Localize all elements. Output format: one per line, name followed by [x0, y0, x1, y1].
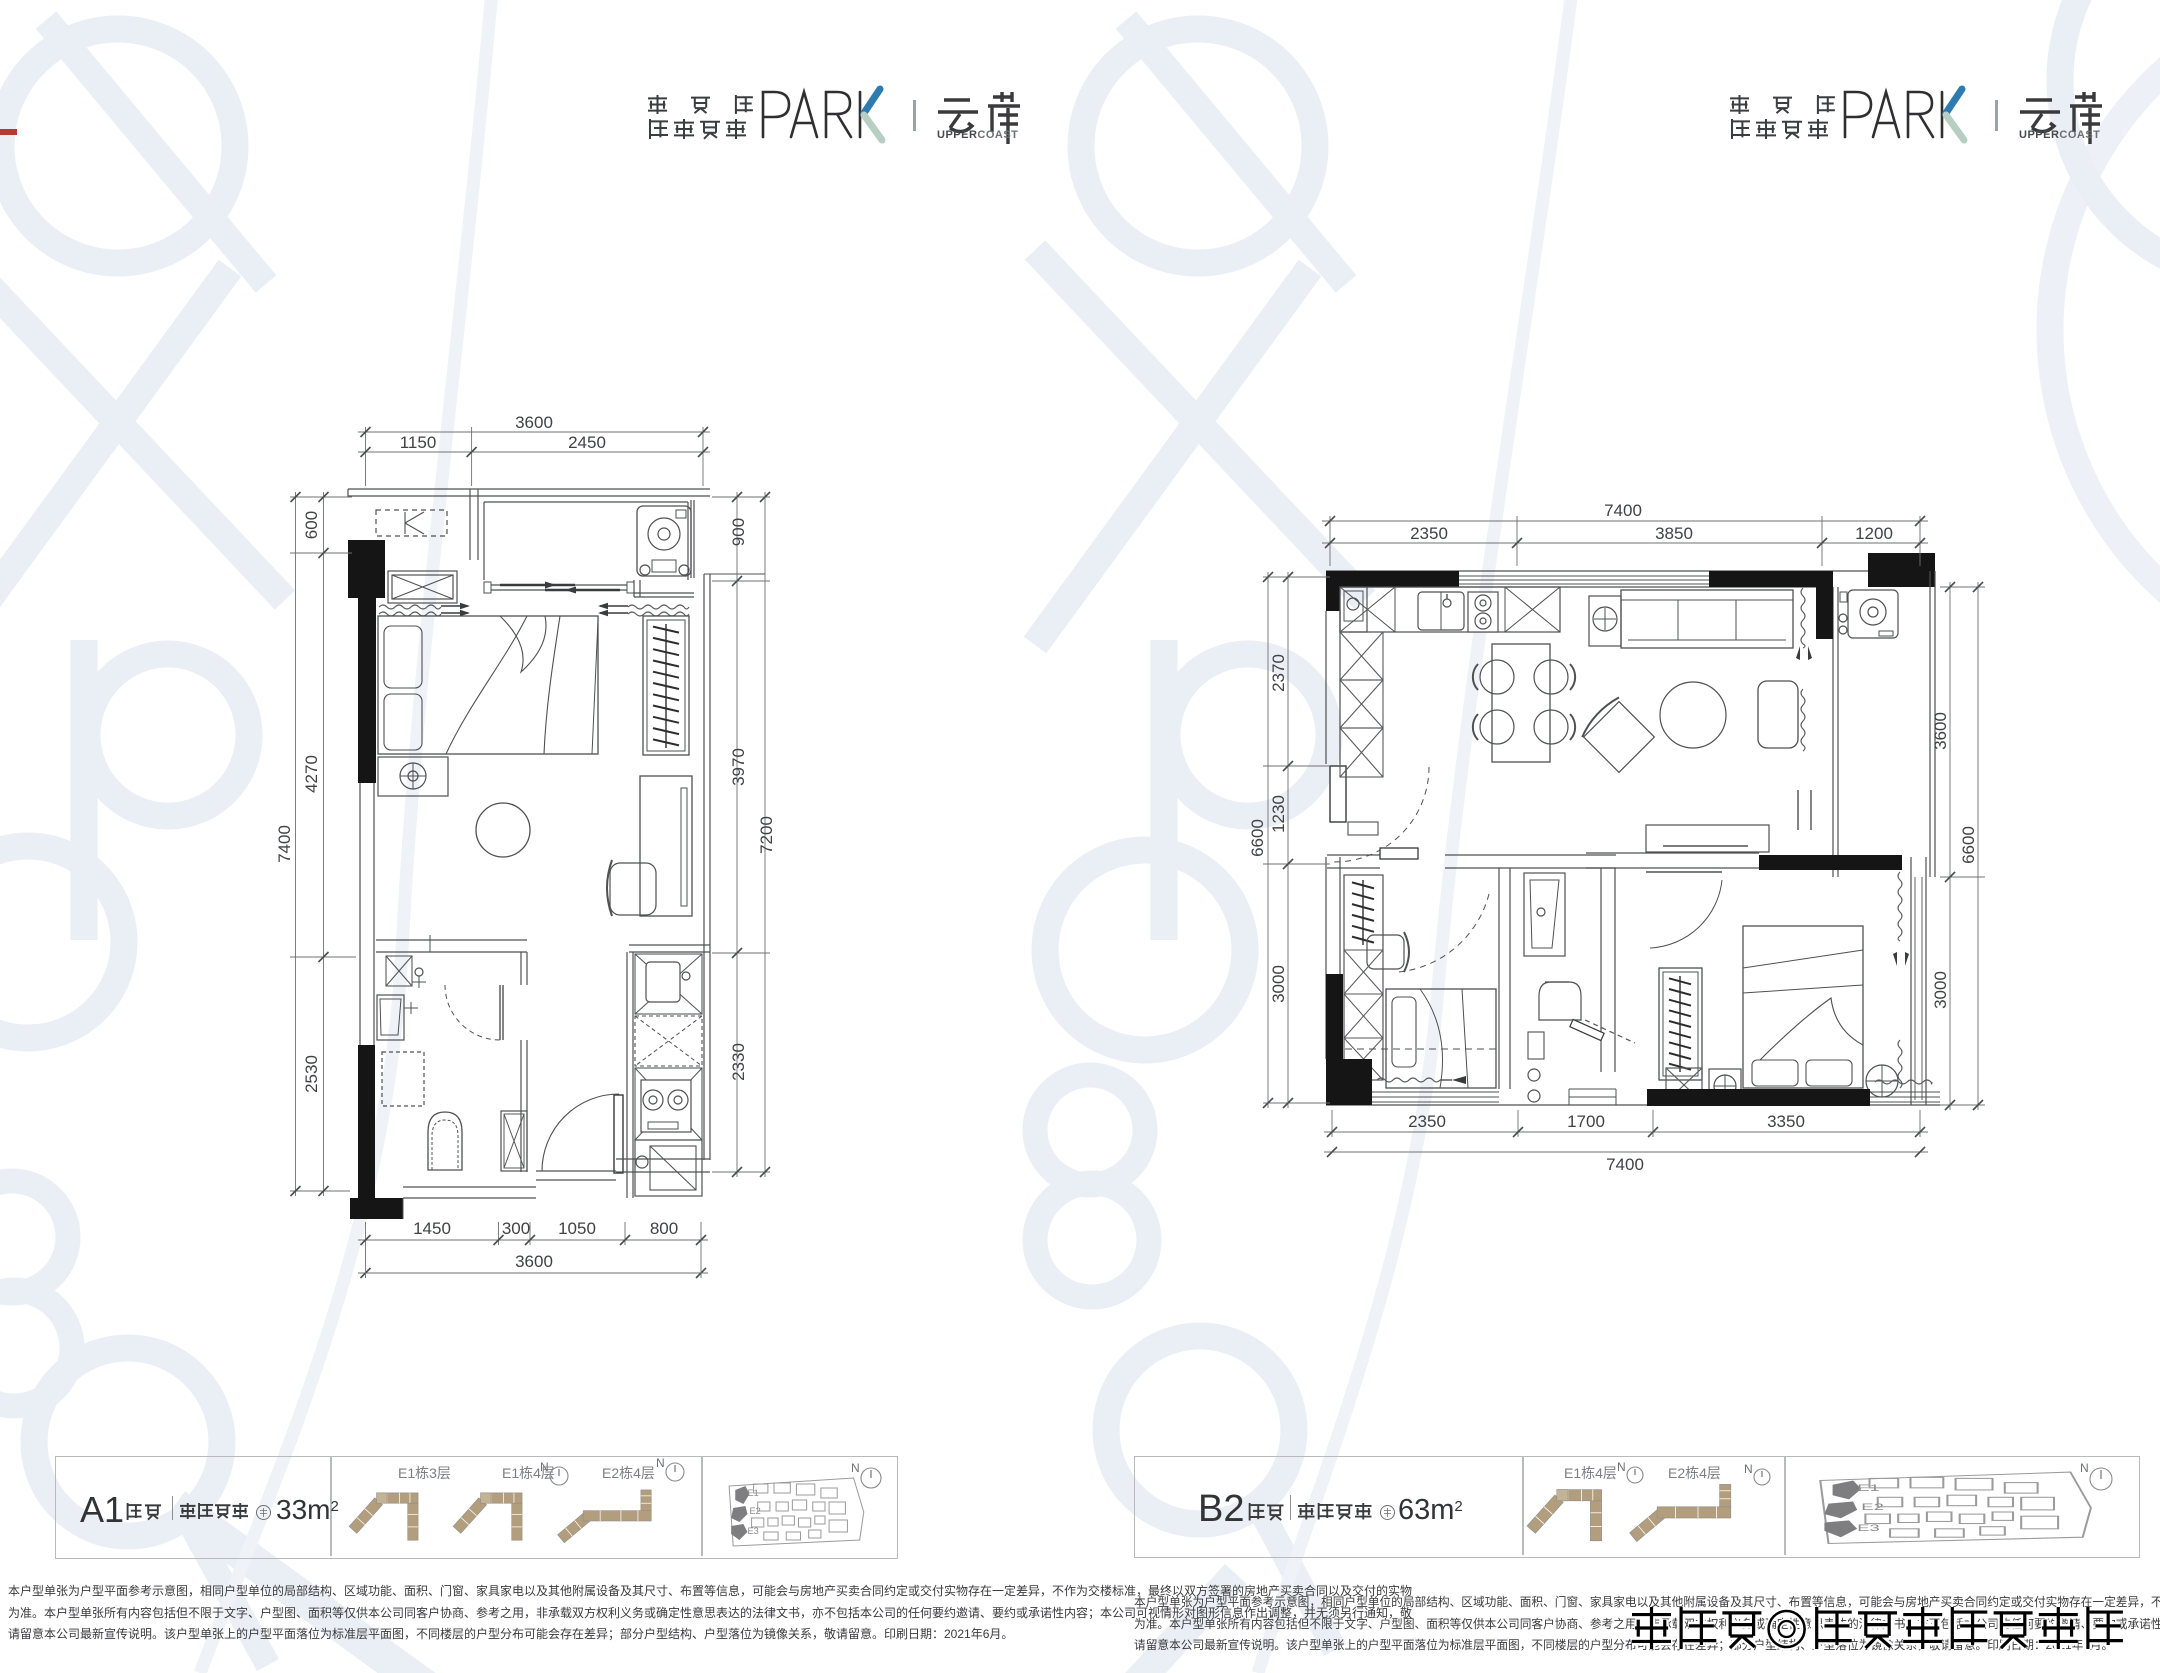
svg-text:N: N: [1617, 1460, 1626, 1474]
svg-text:N: N: [656, 1456, 665, 1470]
svg-text:7200: 7200: [757, 816, 776, 854]
svg-text:1230: 1230: [1269, 795, 1288, 833]
svg-text:1150: 1150: [400, 433, 437, 452]
svg-text:1700: 1700: [1567, 1112, 1605, 1131]
svg-text:N: N: [2080, 1461, 2089, 1475]
svg-text:800: 800: [650, 1219, 678, 1238]
svg-text:E2栋4层: E2栋4层: [602, 1465, 655, 1481]
svg-text:1050: 1050: [558, 1219, 596, 1238]
svg-text:300: 300: [502, 1219, 530, 1238]
svg-text:7400: 7400: [275, 825, 294, 863]
svg-text:3600: 3600: [515, 1252, 553, 1271]
svg-text:900: 900: [729, 518, 748, 546]
svg-text:600: 600: [302, 511, 321, 539]
svg-text:E1: E1: [747, 1488, 758, 1498]
svg-text:E2栋4层: E2栋4层: [1668, 1465, 1721, 1481]
svg-text:6600: 6600: [1248, 819, 1267, 857]
svg-text:3600: 3600: [1931, 712, 1950, 750]
svg-text:E2: E2: [1861, 1502, 1884, 1512]
svg-text:4270: 4270: [302, 755, 321, 793]
svg-text:3600: 3600: [515, 413, 553, 432]
svg-text:E3: E3: [747, 1526, 758, 1536]
svg-text:3000: 3000: [1269, 965, 1288, 1003]
svg-text:2330: 2330: [729, 1043, 748, 1081]
svg-text:E1: E1: [1857, 1483, 1880, 1493]
svg-text:E3: E3: [1857, 1523, 1880, 1533]
svg-text:1450: 1450: [413, 1219, 451, 1238]
svg-text:N: N: [1744, 1462, 1753, 1476]
svg-text:N: N: [851, 1461, 860, 1475]
svg-text:7400: 7400: [1604, 501, 1642, 520]
svg-text:N: N: [540, 1460, 549, 1474]
svg-text:3850: 3850: [1655, 524, 1693, 543]
svg-text:3970: 3970: [729, 748, 748, 786]
svg-text:2350: 2350: [1410, 524, 1448, 543]
svg-text:2350: 2350: [1408, 1112, 1446, 1131]
svg-text:1200: 1200: [1855, 524, 1893, 543]
svg-text:6600: 6600: [1959, 826, 1978, 864]
svg-text:E1栋3层: E1栋3层: [398, 1465, 451, 1481]
svg-text:E1栋4层: E1栋4层: [1564, 1465, 1617, 1481]
svg-text:3350: 3350: [1767, 1112, 1805, 1131]
svg-text:2370: 2370: [1269, 654, 1288, 692]
svg-text:E2: E2: [750, 1506, 761, 1516]
svg-text:2530: 2530: [302, 1055, 321, 1093]
svg-text:7400: 7400: [1606, 1155, 1644, 1174]
svg-text:3000: 3000: [1931, 971, 1950, 1009]
svg-text:2450: 2450: [568, 433, 606, 452]
